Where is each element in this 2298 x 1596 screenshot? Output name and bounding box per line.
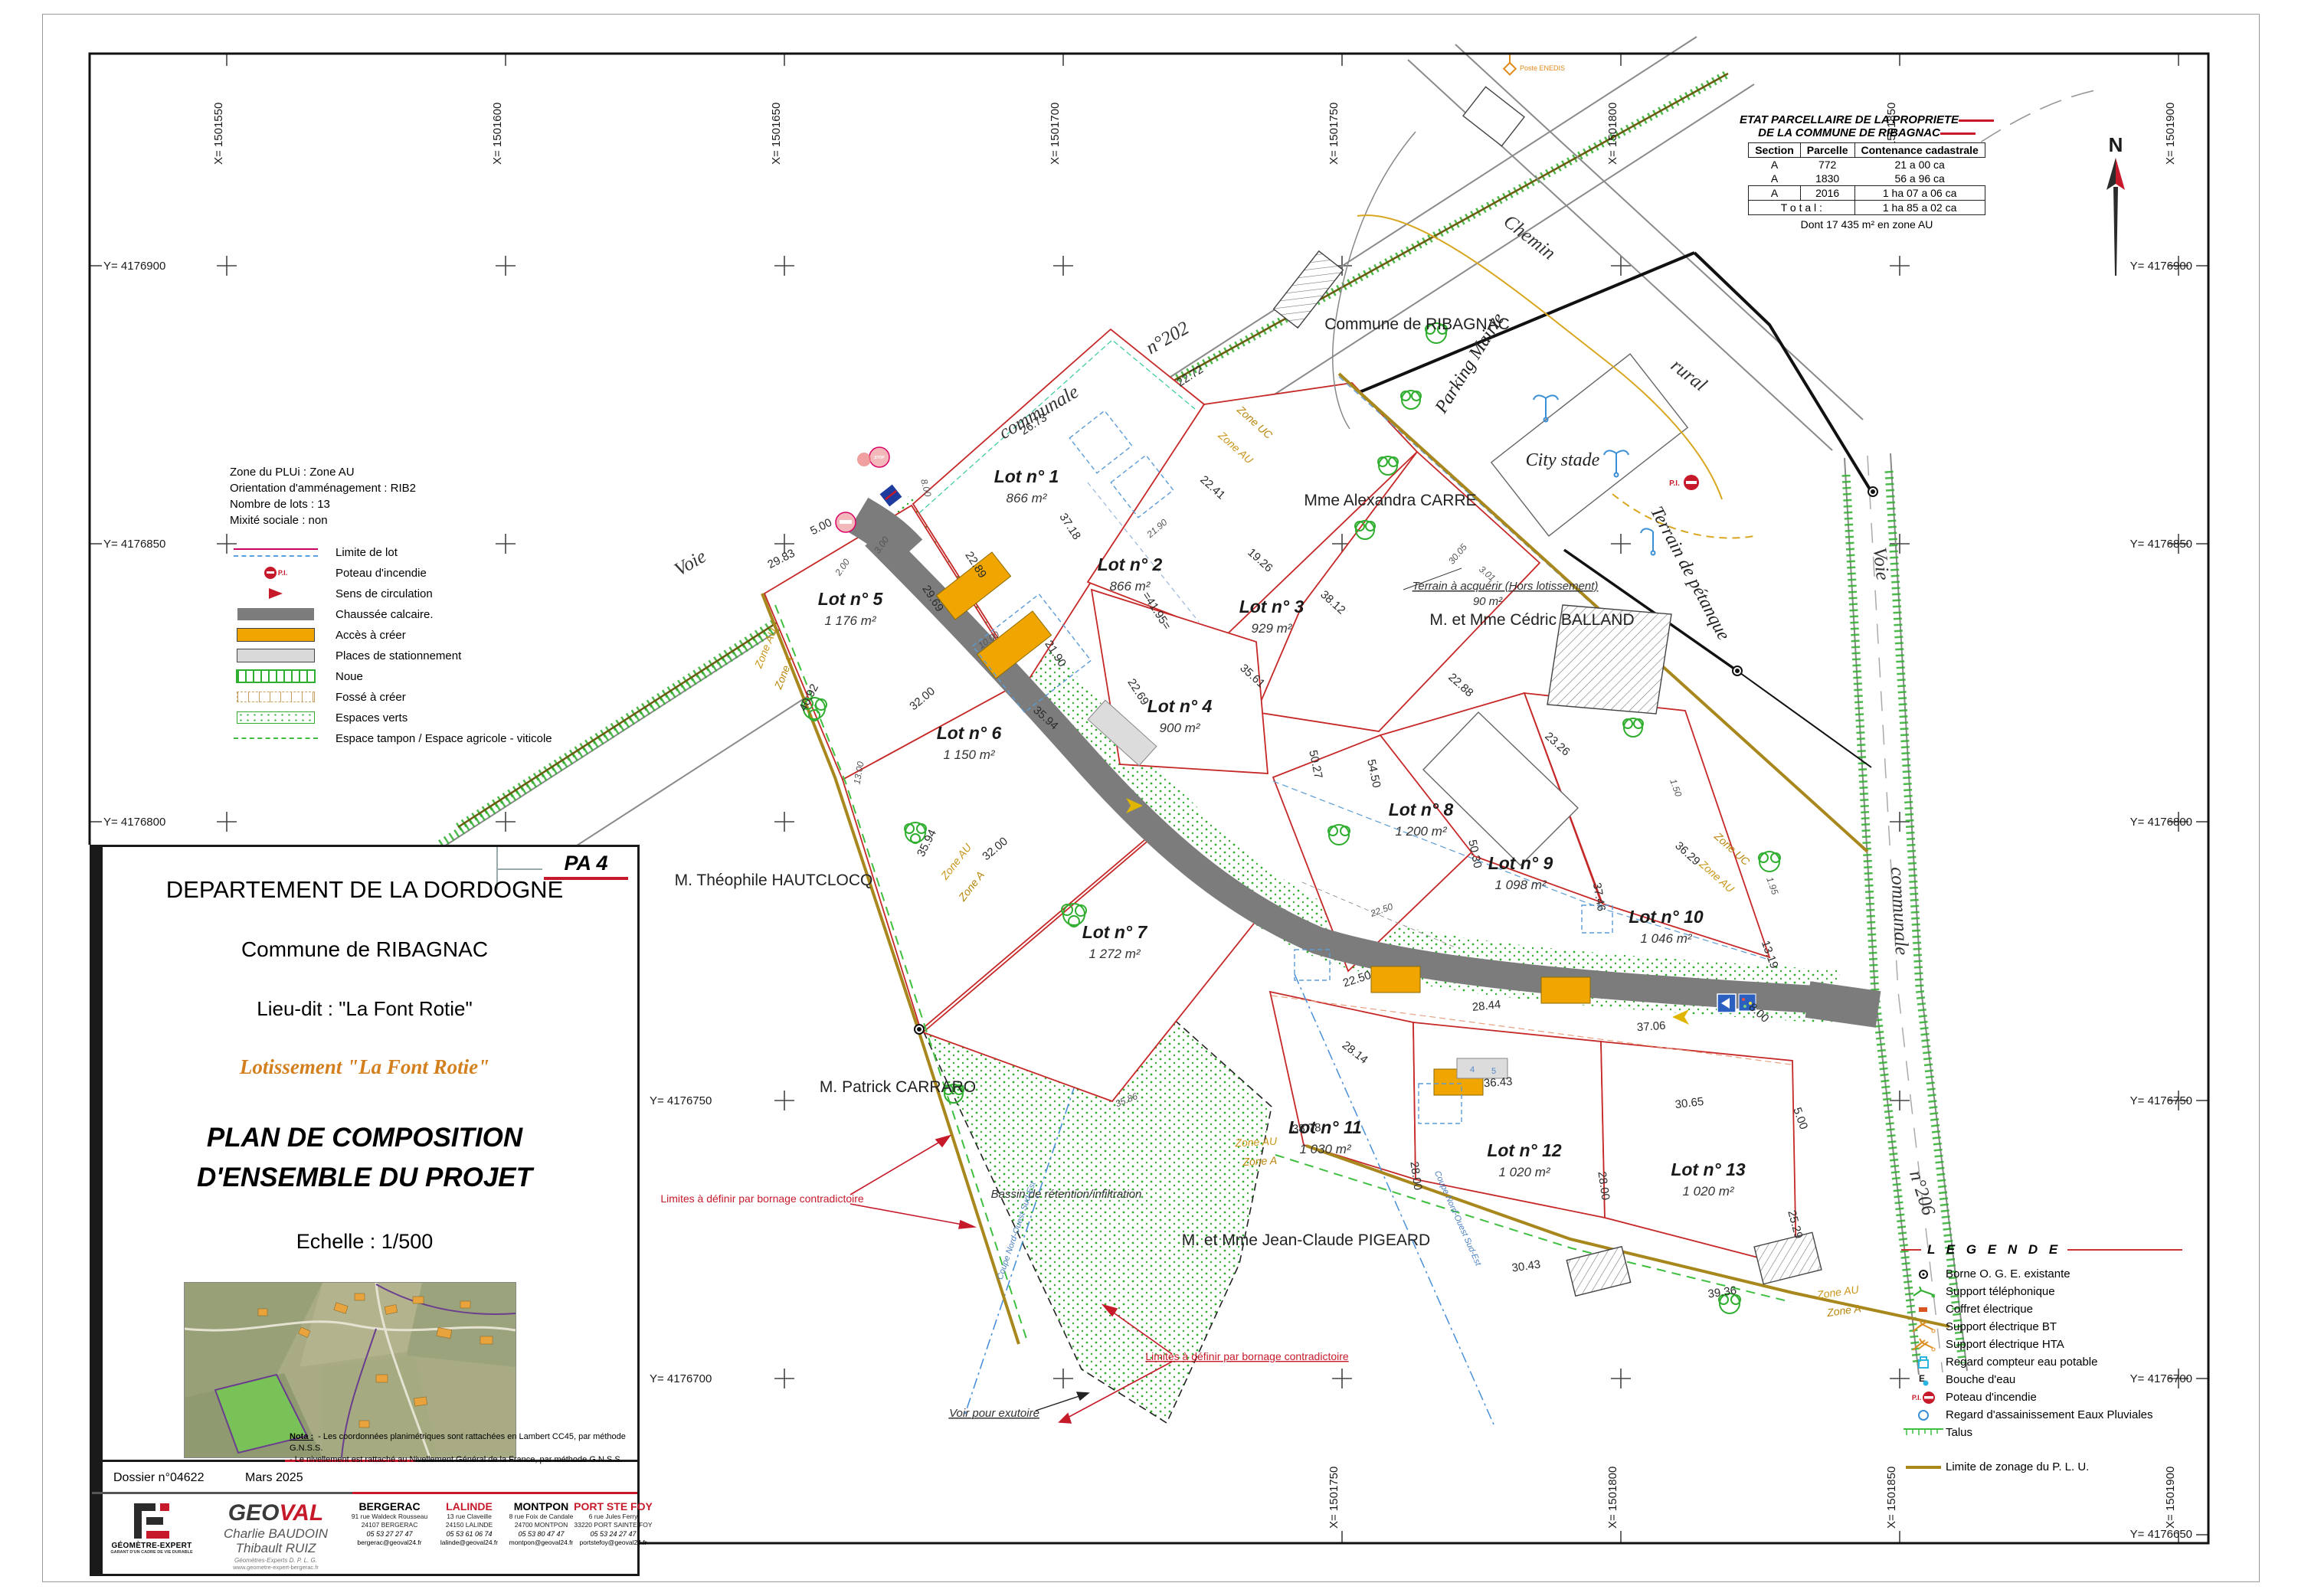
- col-parcelle: Parcelle: [1800, 143, 1854, 158]
- svg-text:1 020 m²: 1 020 m²: [1498, 1165, 1550, 1179]
- legend-item: Borne O. G. E. existante: [1901, 1265, 2223, 1283]
- svg-text:Lot n° 3: Lot n° 3: [1239, 597, 1304, 616]
- legend-item: Support électrique BT: [1901, 1318, 2223, 1336]
- legend-item: Places de stationnement: [230, 646, 552, 665]
- svg-text:Lot n° 7: Lot n° 7: [1082, 922, 1148, 942]
- nota-block: Nota : - Les coordonnées planimétriques …: [290, 1431, 650, 1466]
- limite-lot-swatch: [234, 548, 318, 557]
- pi-label: P.I.: [1669, 479, 1680, 488]
- col-section: Section: [1749, 143, 1801, 158]
- legend-item: Chaussée calcaire.: [230, 605, 552, 623]
- geometre-expert-logo: GÉOMÈTRE-EXPERT GARANT D'UN CADRE DE VIE…: [106, 1503, 198, 1555]
- legende-box: L E G E N D E Borne O. G. E. existante S…: [1901, 1242, 2223, 1476]
- dossier-date: Mars 2025: [245, 1471, 303, 1485]
- legend-item: Limite de zonage du P. L. U.: [1901, 1458, 2223, 1476]
- office-montpon: MONTPON 8 rue Foix de Candale 24700 MONT…: [501, 1500, 581, 1546]
- svg-text:Lot n° 8: Lot n° 8: [1389, 800, 1454, 819]
- espace-tampon-swatch: [234, 737, 318, 739]
- table-row: A 772 21 a 00 ca: [1749, 158, 1985, 172]
- svg-text:City stade: City stade: [1526, 450, 1600, 470]
- geoval-logo-icon: [134, 1503, 169, 1539]
- svg-text:1 046 m²: 1 046 m²: [1640, 931, 1692, 946]
- svg-text:900 m²: 900 m²: [1160, 721, 1201, 735]
- svg-text:Lot n° 10: Lot n° 10: [1629, 907, 1704, 927]
- noue-swatch: [236, 669, 316, 683]
- sens-circulation-icon: [269, 588, 283, 599]
- scale-label: Echelle : 1/500: [123, 1230, 607, 1254]
- fosse-swatch: [237, 692, 315, 702]
- svg-text:Voie: Voie: [1869, 546, 1893, 581]
- svg-text:Zone A: Zone A: [1242, 1154, 1277, 1168]
- svg-text:Terrain à acquérir (Hors lotis: Terrain à acquérir (Hors lotissement): [1413, 580, 1599, 593]
- plan-title-line1: PLAN DE COMPOSITION: [123, 1123, 607, 1153]
- legend-item: Espaces verts: [230, 708, 552, 727]
- acces-swatch: [237, 628, 315, 642]
- svg-text:1 030 m²: 1 030 m²: [1299, 1142, 1351, 1156]
- poste-enedis-label: Poste ENEDIS: [1520, 64, 1565, 72]
- legend-item: P.I.Poteau d'incendie: [1901, 1388, 2223, 1406]
- plan-sheet: STOP P.I. Poste ENEDIS N: [0, 0, 2298, 1596]
- bouche-eau-icon: E: [1916, 1373, 1931, 1387]
- poteau-incendie-icon: [264, 567, 277, 579]
- support-bt-icon: [1911, 1320, 1936, 1335]
- email-link[interactable]: montpon@geoval24.fr: [501, 1539, 581, 1546]
- svg-text:Limites à définir par bornage: Limites à définir par bornage contradict…: [1145, 1350, 1349, 1362]
- legend-item: P.I.Poteau d'incendie: [230, 564, 552, 582]
- legend-item: Sens de circulation: [230, 584, 552, 603]
- office-portstefoy: PORT STE FOY 6 rue Jules Ferry 33220 POR…: [573, 1500, 653, 1546]
- legend-item: Support téléphonique: [1901, 1283, 2223, 1300]
- svg-text:1 150 m²: 1 150 m²: [943, 747, 995, 762]
- dossier-number: Dossier n°04622: [113, 1471, 204, 1485]
- department-title: DEPARTEMENT DE LA DORDOGNE: [123, 876, 607, 904]
- parcel-table: ETAT PARCELLAIRE DE LA PROPRIETE DE LA C…: [1710, 113, 2024, 231]
- firm-name-block: GEOVAL Charlie BAUDOIN Thibault RUIZ Géo…: [207, 1500, 345, 1571]
- svg-text:Y= 4176750: Y= 4176750: [650, 1094, 712, 1107]
- stop-sign-label: STOP: [874, 456, 885, 460]
- svg-text:X= 1501850: X= 1501850: [1885, 1467, 1898, 1529]
- parcel-table-title: ETAT PARCELLAIRE DE LA PROPRIETE: [1740, 113, 1959, 126]
- legend-item: Noue: [230, 667, 552, 685]
- support-telephone-icon: [1912, 1285, 1935, 1299]
- legend-item: Coffret électrique: [1901, 1300, 2223, 1318]
- legend-item: Fossé à créer: [230, 688, 552, 706]
- office-lalinde: LALINDE 13 rue Claveille 24150 LALINDE 0…: [429, 1500, 509, 1546]
- lieu-dit: Lieu-dit : "La Font Rotie": [123, 997, 607, 1021]
- stationnement-swatch: [237, 649, 315, 662]
- svg-text:1 272 m²: 1 272 m²: [1088, 947, 1141, 961]
- email-link[interactable]: bergerac@geoval24.fr: [349, 1539, 430, 1546]
- svg-text:M. Patrick CARRARO: M. Patrick CARRARO: [820, 1078, 976, 1096]
- svg-text:X= 1501750: X= 1501750: [1327, 103, 1340, 165]
- email-link[interactable]: portstefoy@geoval24.fr: [573, 1539, 653, 1546]
- svg-text:929 m²: 929 m²: [1252, 621, 1293, 636]
- svg-text:Y= 4176700: Y= 4176700: [650, 1372, 712, 1385]
- svg-text:Voir pour exutoire: Voir pour exutoire: [949, 1407, 1039, 1420]
- table-row: A 2016 1 ha 07 a 06 ca: [1749, 186, 1985, 201]
- plu-zone: Zone du PLUi : Zone AU: [230, 466, 552, 479]
- svg-text:90 m²: 90 m²: [1473, 595, 1503, 608]
- svg-text:Lot n° 4: Lot n° 4: [1147, 696, 1213, 716]
- title-block: PA 4 DEPARTEMENT DE LA DORDOGNE Commune …: [90, 845, 640, 1576]
- espaces-verts-swatch: [237, 711, 315, 724]
- office-bergerac: BERGERAC 91 rue Waldeck Rousseau 24107 B…: [349, 1500, 430, 1546]
- partner-name: Thibault RUIZ: [207, 1541, 345, 1555]
- svg-text:1 020 m²: 1 020 m²: [1682, 1184, 1734, 1199]
- svg-text:1 176 m²: 1 176 m²: [824, 613, 876, 628]
- svg-text:Lot n° 9: Lot n° 9: [1488, 853, 1553, 873]
- dossier-strip: Dossier n°04622 Mars 2025 Nota : - Les c…: [92, 1460, 637, 1494]
- legend-item: Limite de lot: [230, 543, 552, 561]
- svg-text:Lot n° 2: Lot n° 2: [1098, 554, 1163, 574]
- svg-text:Y= 4176900: Y= 4176900: [103, 260, 165, 273]
- svg-text:Lot n° 5: Lot n° 5: [818, 589, 884, 609]
- svg-text:Y= 4176800: Y= 4176800: [2130, 816, 2192, 829]
- svg-text:X= 1501700: X= 1501700: [1049, 103, 1062, 165]
- partner-name: Charlie BAUDOIN: [207, 1526, 345, 1541]
- svg-text:X= 1501550: X= 1501550: [212, 103, 225, 165]
- talus-icon: [1904, 1426, 1943, 1440]
- north-label: N: [2109, 133, 2123, 156]
- parking-number: 4: [1470, 1065, 1475, 1074]
- svg-text:M. et Mme Cédric BALLAND: M. et Mme Cédric BALLAND: [1429, 611, 1634, 629]
- svg-text:Mme Alexandra CARRE: Mme Alexandra CARRE: [1304, 492, 1476, 509]
- svg-text:X= 1501800: X= 1501800: [1606, 1467, 1619, 1529]
- svg-text:Y= 4176800: Y= 4176800: [103, 816, 165, 829]
- svg-text:1 098 m²: 1 098 m²: [1494, 878, 1547, 892]
- svg-text:Y= 4176850: Y= 4176850: [2130, 538, 2192, 551]
- zone-au-note: Dont 17 435 m² en zone AU: [1710, 218, 2024, 231]
- legende-title: L E G E N D E: [1927, 1242, 2061, 1258]
- borne-oge-icon: [1916, 1268, 1931, 1280]
- svg-text:1 200 m²: 1 200 m²: [1395, 824, 1447, 839]
- plu-orientation: Orientation d'amménagement : RIB2: [230, 482, 552, 495]
- regard-ep-icon: [1917, 1409, 1930, 1421]
- parking-number: 5: [1491, 1067, 1496, 1076]
- svg-text:Y= 4176900: Y= 4176900: [2130, 260, 2192, 273]
- svg-text:X= 1501900: X= 1501900: [2164, 103, 2177, 165]
- svg-text:38.78: 38.78: [1292, 1121, 1321, 1136]
- svg-text:Bassin de rétention/infiltrati: Bassin de rétention/infiltration: [991, 1188, 1142, 1201]
- table-row: A 1830 56 a 96 ca: [1749, 172, 1985, 186]
- table-total-row: T o t a l : 1 ha 85 a 02 ca: [1749, 201, 1985, 215]
- svg-text:37.06: 37.06: [1636, 1019, 1666, 1035]
- svg-text:Lot n° 6: Lot n° 6: [937, 723, 1002, 743]
- svg-text:Lot n° 13: Lot n° 13: [1671, 1159, 1746, 1179]
- svg-text:Y= 4176650: Y= 4176650: [2130, 1528, 2192, 1541]
- plu-info-box: Zone du PLUi : Zone AU Orientation d'amm…: [230, 466, 552, 747]
- svg-text:Lot n° 1: Lot n° 1: [994, 466, 1059, 486]
- chaussee-swatch: [237, 608, 314, 620]
- legend-item: Regard d'assainissement Eaux Pluviales: [1901, 1406, 2223, 1424]
- svg-text:Y= 4176850: Y= 4176850: [103, 538, 165, 551]
- limite-zonage-swatch: [1906, 1466, 1941, 1469]
- svg-text:X= 1501800: X= 1501800: [1606, 103, 1619, 165]
- svg-text:M. et Mme Jean-Claude PIGEARD: M. et Mme Jean-Claude PIGEARD: [1182, 1231, 1430, 1249]
- svg-text:866 m²: 866 m²: [1007, 491, 1048, 505]
- plu-lot-count: Nombre de lots : 13: [230, 498, 552, 511]
- legend-item: Espace tampon / Espace agricole - vitico…: [230, 729, 552, 747]
- plu-mixite: Mixité sociale : non: [230, 514, 552, 527]
- svg-text:36.43: 36.43: [1483, 1075, 1513, 1091]
- support-hta-icon: [1911, 1337, 1936, 1352]
- svg-text:M. Théophile HAUTCLOCQ: M. Théophile HAUTCLOCQ: [675, 872, 873, 889]
- legend-item: Support électrique HTA: [1901, 1336, 2223, 1353]
- svg-text:Y= 4176750: Y= 4176750: [2130, 1094, 2192, 1107]
- svg-text:Zone AU: Zone AU: [1234, 1135, 1278, 1150]
- svg-text:Limites à définir par bornage: Limites à définir par bornage contradict…: [660, 1192, 864, 1205]
- coffret-electrique-icon: [1917, 1305, 1930, 1314]
- plan-title-line2: D'ENSEMBLE DU PROJET: [123, 1163, 607, 1193]
- legend-item: EBouche d'eau: [1901, 1371, 2223, 1388]
- svg-text:X= 1501750: X= 1501750: [1327, 1467, 1340, 1529]
- website-link[interactable]: www.geometre-expert-bergerac.fr: [207, 1564, 345, 1571]
- poteau-incendie-icon: [1921, 1391, 1936, 1405]
- svg-text:Lot n° 12: Lot n° 12: [1487, 1140, 1562, 1160]
- legend-item: Regard compteur eau potable: [1901, 1353, 2223, 1371]
- svg-text:X= 1501650: X= 1501650: [770, 103, 783, 165]
- red-rule: [1959, 119, 1994, 122]
- legend-item: Talus: [1901, 1424, 2223, 1441]
- commune-title: Commune de RIBAGNAC: [123, 937, 607, 962]
- col-contenance: Contenance cadastrale: [1854, 143, 1985, 158]
- svg-text:866 m²: 866 m²: [1110, 579, 1151, 594]
- regard-eau-icon: [1916, 1356, 1931, 1369]
- legend-item: Accès à créer: [230, 626, 552, 644]
- red-rule: [1940, 132, 1976, 135]
- svg-text:X= 1501600: X= 1501600: [491, 103, 504, 165]
- lotissement-name: Lotissement "La Font Rotie": [123, 1055, 607, 1079]
- email-link[interactable]: lalinde@geoval24.fr: [429, 1539, 509, 1546]
- firm-strip: GÉOMÈTRE-EXPERT GARANT D'UN CADRE DE VIE…: [92, 1492, 637, 1574]
